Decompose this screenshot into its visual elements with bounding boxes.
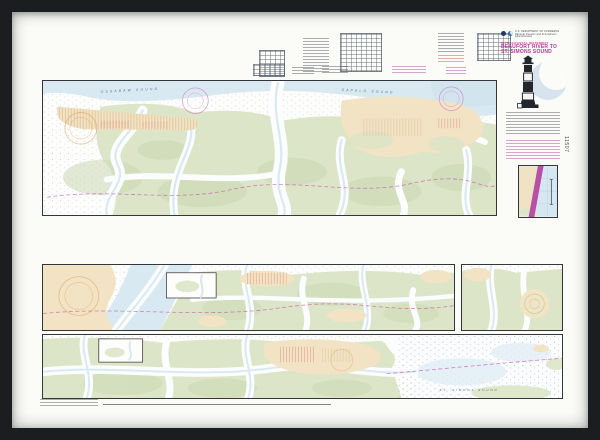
chart-panel-middle <box>42 264 455 331</box>
chart-panel-middle-right <box>461 264 563 331</box>
margin-note-4 <box>446 67 466 76</box>
commerce-seal-icon <box>501 31 506 36</box>
route-note-magenta <box>506 140 560 160</box>
chart-panel-south: ST. SIMONS SOUND <box>42 334 563 399</box>
lighthouse-caption <box>506 112 560 136</box>
framed-nautical-chart: U.S. DEPARTMENT OF COMMERCE National Oce… <box>0 0 600 440</box>
margin-note-1 <box>292 67 314 74</box>
water-label-south: ST. SIMONS SOUND <box>439 388 498 392</box>
scale-bar-block <box>253 64 285 76</box>
chart-title-block: U.S. DEPARTMENT OF COMMERCE National Oce… <box>501 31 567 56</box>
note-paragraph-2-red <box>438 55 464 62</box>
margin-note-3 <box>392 66 426 74</box>
locator-inset-map <box>518 165 558 218</box>
chart-title-line-2: ST. SIMONS SOUND <box>501 50 567 56</box>
chart-edge-number: 11507 <box>563 136 569 153</box>
chart-panel-north: OSSABAW SOUND SAPELO SOUND <box>42 80 497 216</box>
bottom-margin-note-line <box>103 404 331 405</box>
bottom-left-note <box>40 399 98 408</box>
noaa-logo-icon <box>508 31 513 36</box>
agency-line-2: National Oceanic and Atmospheric Adminis… <box>515 34 557 39</box>
margin-note-2 <box>322 66 348 74</box>
note-paragraph-2 <box>438 33 464 53</box>
lighthouse-icon <box>517 55 539 113</box>
